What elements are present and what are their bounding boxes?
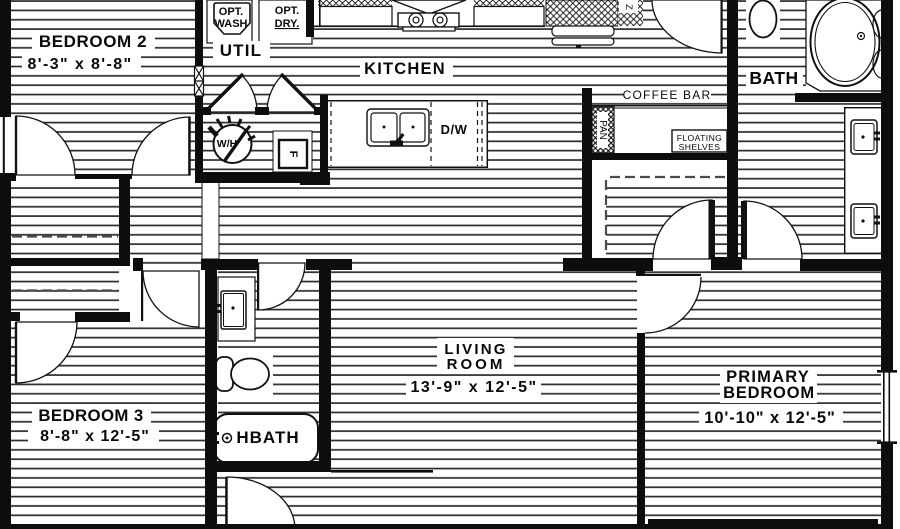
svg-text:D/W: D/W [441, 122, 468, 137]
svg-text:SHELVES: SHELVES [679, 142, 721, 152]
svg-text:W/H: W/H [217, 138, 237, 150]
svg-text:BEDROOM 3: BEDROOM 3 [38, 406, 143, 425]
svg-text:KITCHEN: KITCHEN [364, 60, 446, 78]
svg-text:UTIL: UTIL [220, 41, 263, 60]
svg-text:OPT.: OPT. [219, 6, 243, 18]
svg-text:BEDROOM 2: BEDROOM 2 [39, 32, 147, 51]
svg-text:ROOM: ROOM [447, 356, 506, 373]
svg-text:13'-9" x 12'-5": 13'-9" x 12'-5" [410, 379, 537, 396]
svg-text:COFFEE BAR: COFFEE BAR [623, 88, 712, 102]
svg-text:8'-3" x 8'-8": 8'-3" x 8'-8" [27, 56, 132, 73]
svg-text:HBATH: HBATH [236, 428, 299, 447]
svg-text:OPT.: OPT. [275, 5, 299, 17]
svg-text:BATH: BATH [749, 68, 798, 88]
svg-text:F: F [287, 151, 299, 158]
svg-text:8'-8" x 12'-5": 8'-8" x 12'-5" [40, 428, 150, 445]
svg-text:WASH: WASH [215, 18, 248, 30]
svg-text:Z: Z [624, 4, 634, 10]
svg-text:PAN: PAN [597, 120, 608, 140]
svg-text:BEDROOM: BEDROOM [723, 384, 815, 402]
svg-text:DRY.: DRY. [275, 18, 300, 30]
svg-text:10'-10" x 12'-5": 10'-10" x 12'-5" [704, 409, 835, 427]
